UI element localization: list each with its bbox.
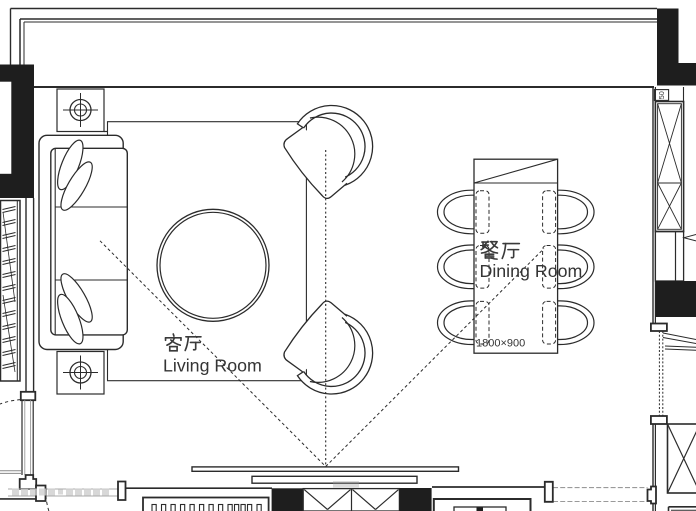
- svg-text:1800×900: 1800×900: [476, 338, 525, 350]
- svg-text:Living Room: Living Room: [163, 355, 262, 375]
- svg-text:Dining Room: Dining Room: [480, 261, 583, 281]
- svg-text:50: 50: [657, 91, 666, 99]
